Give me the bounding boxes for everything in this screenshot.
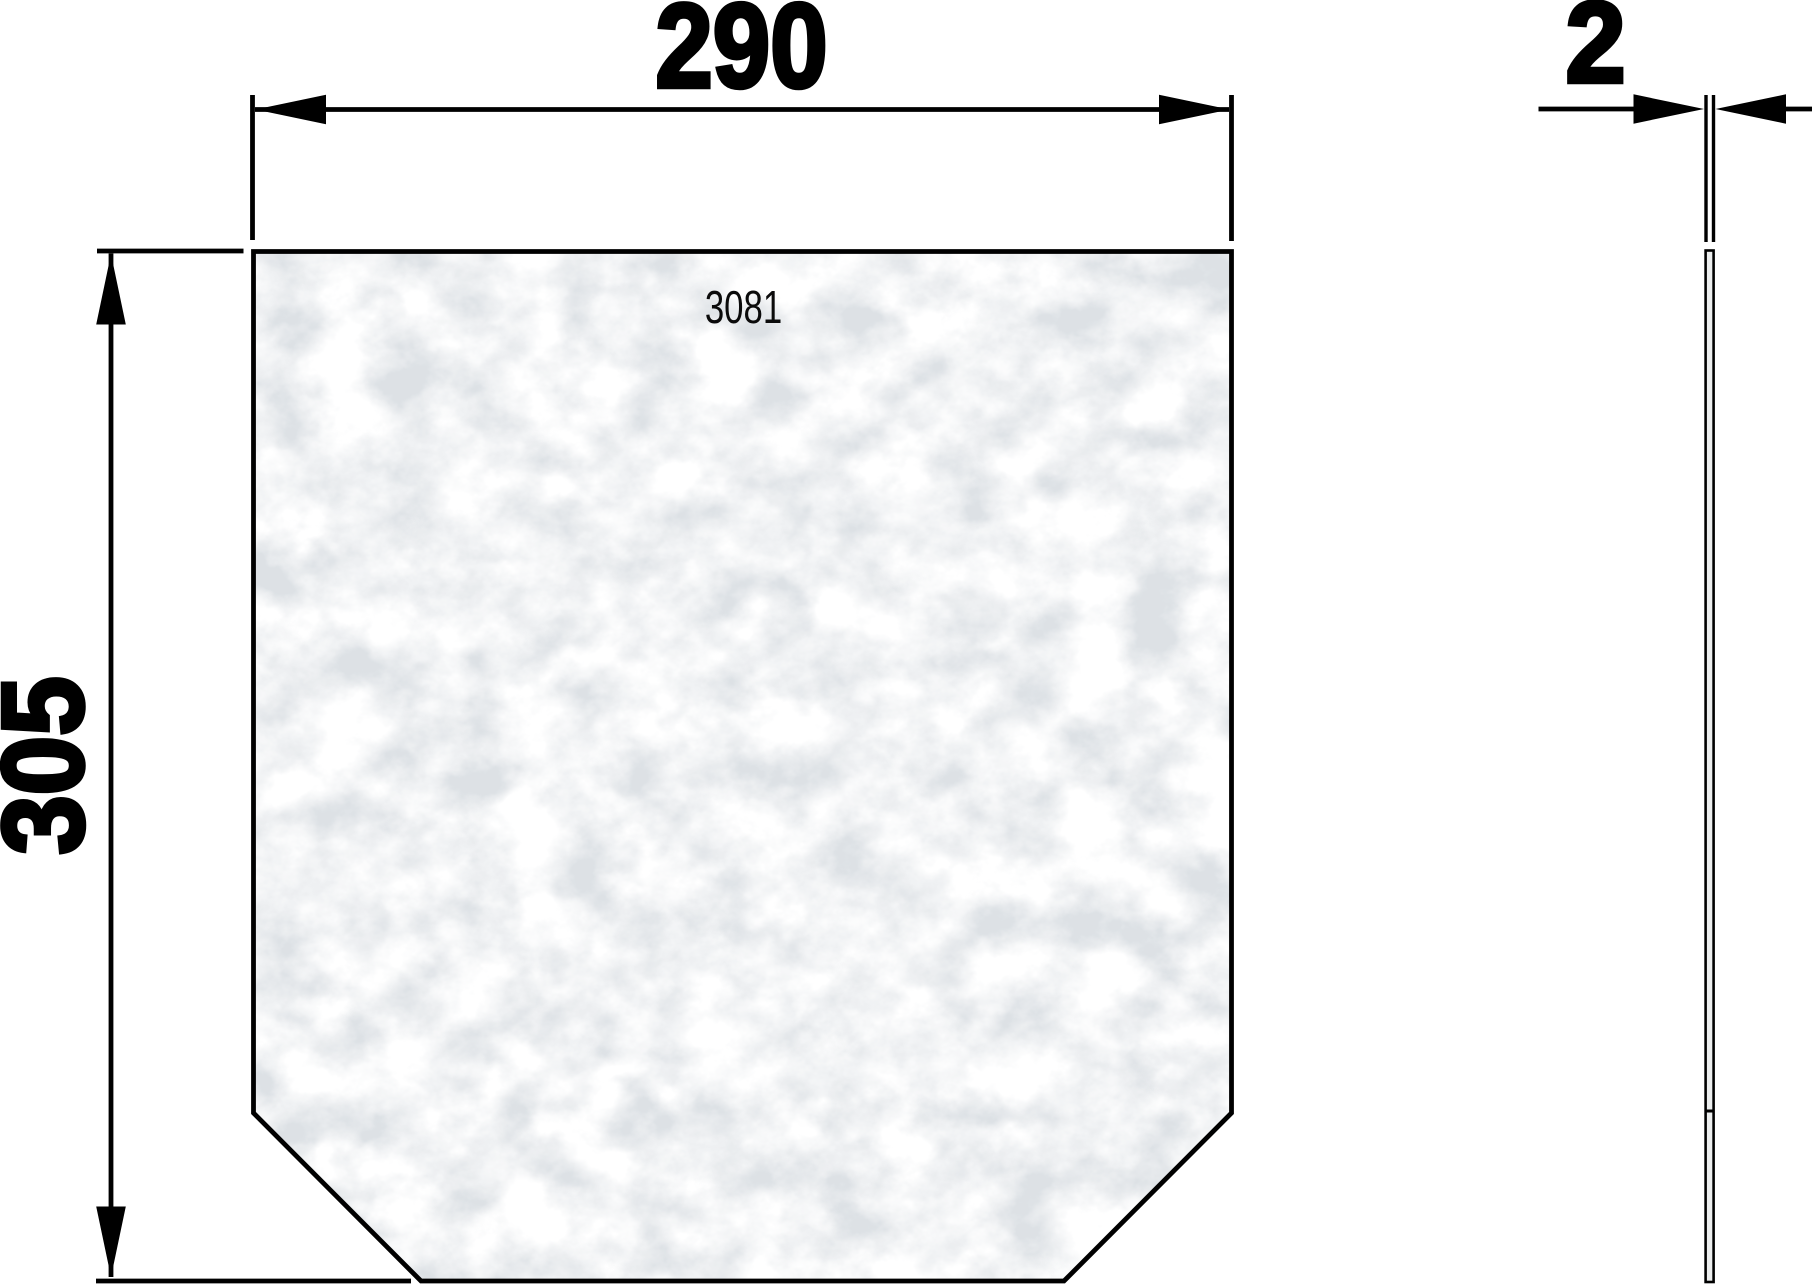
svg-text:2: 2 — [1565, 0, 1625, 107]
svg-text:3081: 3081 — [705, 281, 782, 333]
svg-text:290: 290 — [655, 0, 827, 113]
svg-text:305: 305 — [0, 676, 107, 854]
